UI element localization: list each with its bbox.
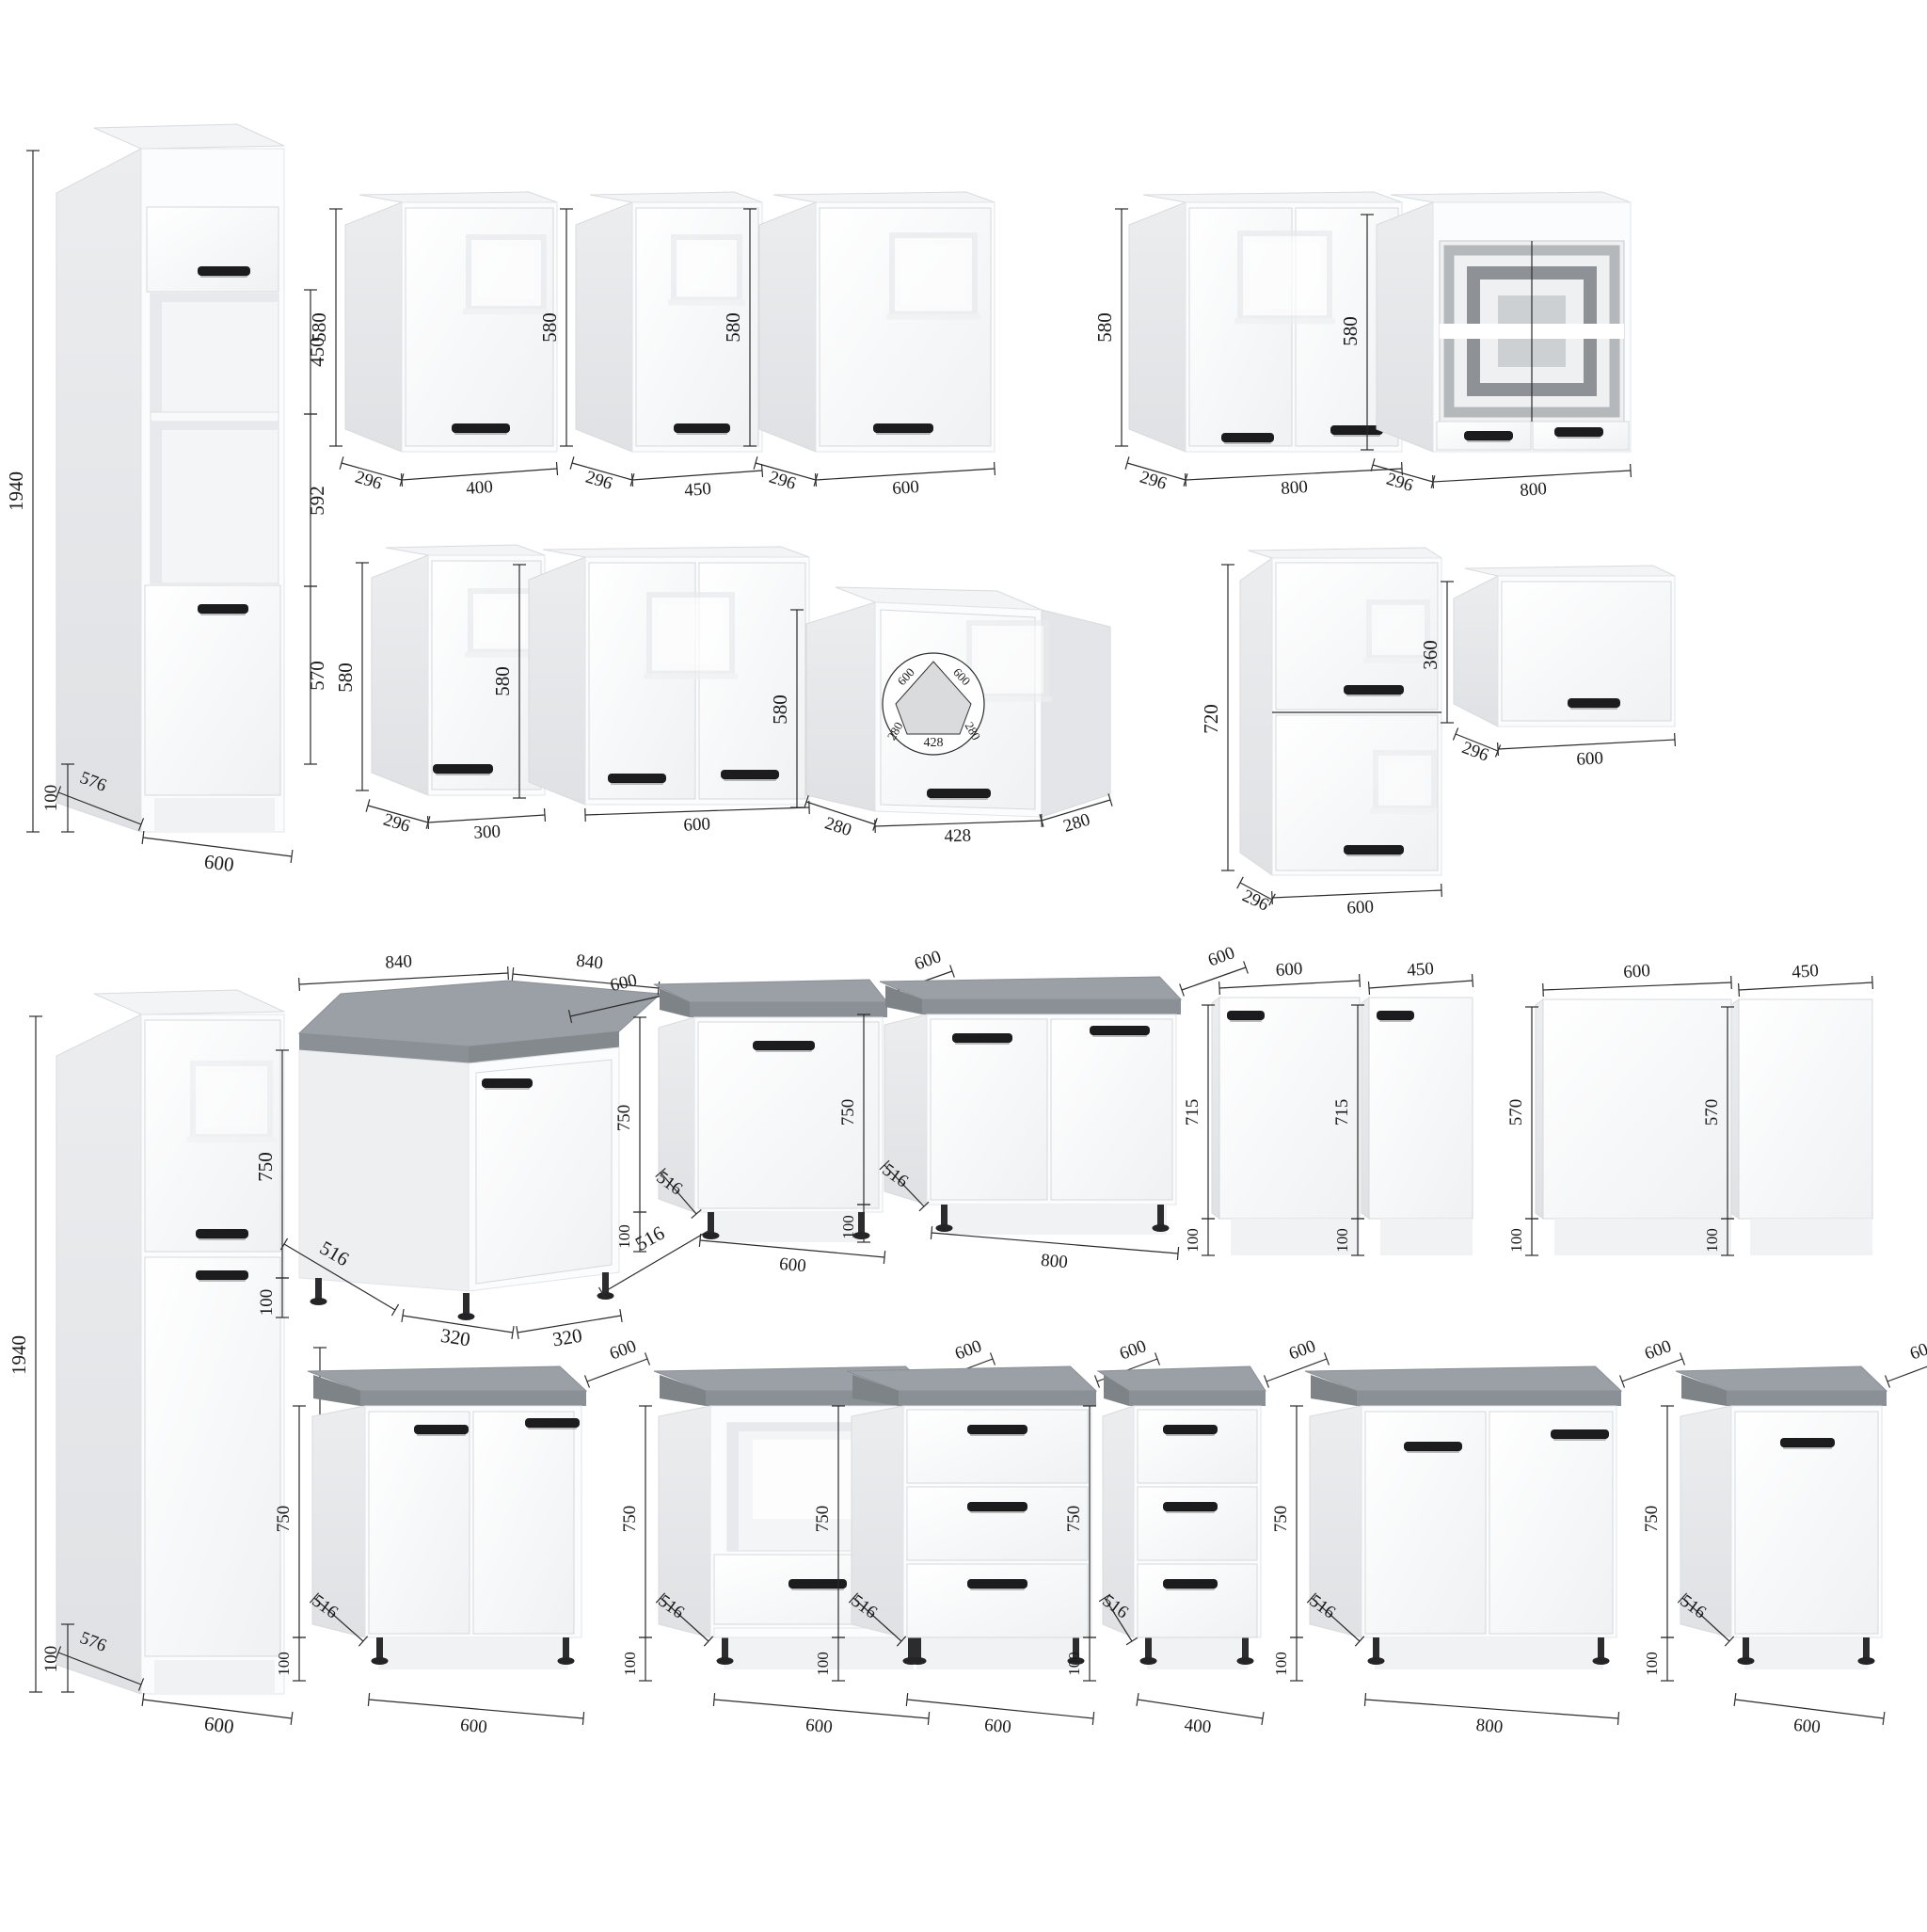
- dimension: 580: [334, 563, 369, 790]
- side-face: [576, 202, 632, 452]
- window-sill: [1234, 318, 1335, 324]
- dimension-label: 428: [944, 826, 971, 847]
- door: [1489, 1412, 1613, 1634]
- door-handle: [1344, 845, 1404, 854]
- dim-line: [1498, 740, 1675, 749]
- dimension-label: 800: [1281, 477, 1309, 499]
- dim-line: [368, 1693, 369, 1706]
- door-handle: [198, 604, 248, 614]
- dimension-label: 100: [814, 1652, 832, 1676]
- dim-line: [906, 1693, 907, 1706]
- dimension: 600: [1219, 959, 1361, 995]
- dim-line: [1472, 974, 1473, 987]
- dimension-label: 296: [1138, 468, 1169, 494]
- dim-line: [1739, 983, 1740, 997]
- dimension-label: 100: [275, 1652, 293, 1676]
- top-face: [1391, 192, 1631, 202]
- dimension-label: 750: [838, 1099, 858, 1126]
- cabinet-dimensions-diagram: 1940450592570100576600580296400580296450…: [0, 0, 1927, 1927]
- countertop-front: [360, 1391, 586, 1406]
- window-reflection: [1370, 753, 1440, 814]
- dim-line: [369, 1700, 583, 1718]
- door-handle: [967, 1579, 1027, 1589]
- countertop-front: [1357, 1391, 1621, 1406]
- dim-line: [1237, 877, 1244, 888]
- dim-line: [1219, 982, 1220, 995]
- handle-shadow: [1407, 1450, 1459, 1453]
- dimension-label: 450: [1792, 961, 1820, 982]
- appliance-front-600x570: 600570100: [1506, 961, 1731, 1255]
- dimension-label: 600: [983, 1716, 1011, 1737]
- dim-line: [1631, 464, 1632, 477]
- dimension: 320: [517, 1309, 622, 1350]
- dimension-label: 750: [813, 1506, 833, 1533]
- dimension: 600: [585, 1336, 650, 1387]
- plinth: [154, 1660, 275, 1694]
- leg-foot: [703, 1232, 720, 1239]
- handle-shadow: [1553, 1438, 1606, 1441]
- dimension: 800: [1364, 1693, 1618, 1737]
- handle-shadow: [1166, 1433, 1215, 1436]
- window-sill: [463, 309, 549, 314]
- dim-line: [1498, 742, 1499, 756]
- dimension: 570: [1506, 1007, 1538, 1219]
- window-reflection: [668, 237, 745, 306]
- dim-line: [714, 1700, 929, 1718]
- dimension: 100: [1184, 1219, 1215, 1255]
- dimension-label: 600: [1576, 748, 1604, 769]
- top-face: [590, 192, 762, 202]
- leg-foot: [717, 1657, 734, 1665]
- dimension: 600: [1543, 961, 1732, 997]
- door-handle: [1464, 431, 1513, 440]
- side-face: [1377, 202, 1433, 452]
- top-face: [94, 990, 284, 1014]
- edge: [1536, 999, 1543, 1219]
- dimension: 450: [1368, 959, 1473, 995]
- dimension-label: 400: [1184, 1716, 1212, 1737]
- dimension-label: 840: [385, 951, 413, 972]
- door-handle: [1163, 1425, 1218, 1434]
- dimension-label: 720: [1200, 704, 1222, 734]
- dimension-label: 580: [1339, 316, 1362, 346]
- top-face: [386, 545, 545, 555]
- dimension-label: 580: [308, 312, 330, 343]
- window-glass: [1385, 762, 1425, 799]
- leg: [1743, 1637, 1749, 1658]
- dimension-label: 450: [1407, 959, 1435, 981]
- dimension: 1940: [8, 1016, 42, 1692]
- window-sill: [668, 300, 745, 306]
- side-face-right: [1042, 610, 1110, 817]
- leg: [722, 1637, 728, 1658]
- door-handle: [952, 1033, 1012, 1043]
- dim-line: [1731, 976, 1732, 989]
- door-handle: [1090, 1026, 1150, 1035]
- handle-shadow: [1333, 434, 1380, 437]
- dimension: 600: [906, 1693, 1093, 1737]
- dim-line: [645, 1352, 650, 1365]
- dimension-label: 280: [822, 813, 854, 840]
- dimension: 715: [1183, 1005, 1215, 1219]
- leg-foot: [910, 1657, 927, 1665]
- plinth: [1375, 1637, 1603, 1669]
- dimension: 600: [1498, 733, 1676, 770]
- dimension-label: 580: [722, 312, 744, 343]
- dimension-label: 600: [912, 947, 944, 974]
- dimension: 450: [631, 464, 762, 501]
- door-handle: [1344, 685, 1404, 695]
- dim-line: [545, 808, 546, 822]
- dim-line: [1433, 475, 1434, 488]
- leg: [708, 1212, 714, 1233]
- dim-line: [1092, 1712, 1093, 1725]
- plinth: [946, 1205, 1167, 1235]
- dimension-label: 100: [1333, 1228, 1351, 1253]
- door-handle: [927, 789, 991, 798]
- dim-line: [1543, 982, 1731, 990]
- side-face-left: [806, 602, 875, 811]
- dimension-label: 600: [1275, 959, 1303, 981]
- dimension-label: 600: [1623, 961, 1651, 982]
- dimension-label: 580: [334, 663, 357, 693]
- handle-shadow: [485, 1087, 530, 1090]
- handle-shadow: [1224, 441, 1271, 444]
- dimension-label: 800: [1040, 1251, 1068, 1272]
- handle-shadow: [970, 1510, 1025, 1513]
- door-handle: [1330, 425, 1383, 435]
- side-face: [1129, 202, 1186, 452]
- dim-line: [1887, 1359, 1927, 1381]
- door: [145, 1257, 280, 1656]
- door-handle: [674, 423, 730, 433]
- dimension-label: 570: [1506, 1099, 1526, 1126]
- dimension: 580: [1093, 209, 1128, 446]
- dimension-label: 400: [466, 477, 494, 499]
- tall-cabinet-oven-housing: 1940450592570100576600: [5, 124, 328, 876]
- door: [369, 1412, 470, 1634]
- countertop-front: [1727, 1391, 1887, 1406]
- side-face: [56, 149, 141, 832]
- door: [907, 1410, 1088, 1483]
- dimension-label: 360: [1419, 640, 1441, 670]
- dimension-label: 592: [306, 486, 328, 516]
- dimension-label: 300: [473, 822, 502, 842]
- dimension: 296: [1371, 458, 1435, 496]
- oven-niche-back: [753, 1440, 866, 1519]
- dimension-label: 296: [353, 468, 384, 494]
- dim-line: [512, 967, 513, 981]
- dimension-label: 100: [1272, 1652, 1290, 1676]
- leg: [1157, 1205, 1164, 1225]
- dimension-label: 570: [306, 661, 328, 691]
- dim-line: [1364, 1693, 1365, 1706]
- window-glass: [478, 247, 534, 299]
- dimension: 600: [1734, 1693, 1885, 1737]
- door-handle: [1404, 1442, 1462, 1451]
- dim-line: [299, 978, 300, 991]
- dimension: 100: [1272, 1637, 1303, 1681]
- dim-line: [401, 473, 402, 487]
- door-handle: [967, 1425, 1027, 1434]
- door-handle: [1554, 427, 1603, 437]
- window-sill: [187, 1137, 276, 1142]
- plinth: [1750, 1219, 1872, 1255]
- countertop-top: [654, 980, 887, 1002]
- dim-line: [1325, 1352, 1330, 1365]
- dimension: 750: [1271, 1406, 1303, 1637]
- dimension-label: 320: [550, 1324, 583, 1351]
- leg-foot: [1237, 1657, 1254, 1665]
- panel-front: [1739, 999, 1872, 1219]
- leg-foot: [936, 1224, 953, 1232]
- dimension-label: 715: [1332, 1099, 1352, 1126]
- dimension: 100: [1643, 1637, 1674, 1681]
- side-face: [1240, 558, 1272, 875]
- dimension: 600: [142, 831, 293, 876]
- dimension: 296: [570, 456, 634, 494]
- dim-line: [1272, 890, 1441, 898]
- window-sill: [886, 314, 980, 320]
- handle-shadow: [1092, 1034, 1147, 1037]
- dim-line: [1186, 473, 1186, 487]
- dimension-label: 296: [381, 810, 412, 837]
- handle-shadow: [199, 1237, 246, 1240]
- handle-shadow: [1346, 694, 1401, 696]
- dimension: 800: [1186, 462, 1403, 499]
- edge: [1212, 998, 1219, 1219]
- dimension-label: 600: [1792, 1716, 1821, 1737]
- dimension: 592: [304, 414, 328, 586]
- door: [1138, 1564, 1257, 1637]
- dimension: 320: [402, 1309, 514, 1350]
- dim-line: [932, 1233, 1178, 1253]
- leg-foot: [458, 1313, 475, 1320]
- dim-line: [508, 966, 509, 980]
- dimension-label: 320: [439, 1324, 472, 1351]
- countertop-top: [1305, 1366, 1621, 1391]
- dimension: 600: [585, 801, 809, 836]
- niche-shade: [151, 422, 279, 430]
- dim-line: [761, 464, 762, 477]
- dim-line: [1365, 1700, 1618, 1718]
- dim-line: [931, 1226, 932, 1239]
- leg-foot: [1738, 1657, 1755, 1665]
- window-sill: [644, 674, 738, 679]
- countertop-front: [899, 1391, 1096, 1406]
- dimension-label: 580: [491, 666, 514, 696]
- door: [476, 1060, 612, 1284]
- dimension-label: 715: [1183, 1099, 1202, 1126]
- dim-line: [816, 473, 817, 487]
- window-reflection: [463, 237, 549, 314]
- door-handle: [452, 423, 510, 433]
- dimension-label: 600: [203, 850, 235, 876]
- leg-foot: [1140, 1657, 1157, 1665]
- dim-line: [582, 1712, 583, 1725]
- base-cabinet-600-single-door: 600750100516600: [1642, 1336, 1927, 1737]
- dimension: 450: [304, 290, 328, 414]
- window-glass: [1378, 612, 1418, 648]
- leg-foot: [1368, 1657, 1385, 1665]
- edge: [1731, 999, 1739, 1219]
- side-face: [345, 202, 402, 452]
- door-handle: [1780, 1438, 1835, 1447]
- door-handle: [1227, 1011, 1265, 1020]
- dim-line: [658, 982, 659, 995]
- dim-line: [1886, 1375, 1890, 1387]
- door-handle: [1568, 698, 1620, 708]
- door: [931, 1019, 1047, 1200]
- dimension-label: 100: [41, 785, 61, 812]
- handle-shadow: [876, 432, 931, 435]
- handle-shadow: [528, 1427, 577, 1429]
- dimension: 296: [1237, 877, 1276, 916]
- plinth: [1380, 1219, 1473, 1255]
- side-face: [372, 555, 428, 795]
- door-handle: [196, 1270, 248, 1280]
- dimension: 450: [1739, 961, 1873, 997]
- dim-line: [1453, 728, 1457, 741]
- niche-shade: [727, 1423, 739, 1551]
- door-handle: [873, 423, 933, 433]
- dimension-label: 296: [583, 468, 614, 494]
- dimension-label: 600: [1205, 943, 1237, 970]
- corner-base-cabinet: 840840600750100516320320516: [254, 951, 715, 1351]
- dimension: 428: [875, 814, 1042, 846]
- handle-shadow: [1166, 1588, 1215, 1590]
- dimension-label: 750: [614, 1105, 634, 1132]
- dim-line: [1368, 982, 1369, 995]
- dimension-label: 840: [575, 951, 604, 974]
- door: [1051, 1019, 1172, 1200]
- door-handle: [1221, 433, 1274, 442]
- handle-shadow: [1379, 1019, 1411, 1022]
- open-niche: [151, 422, 279, 583]
- dim-line: [391, 1304, 398, 1316]
- window-glass: [979, 632, 1037, 687]
- dimension-label: 600: [892, 477, 920, 499]
- door-handle: [196, 1229, 248, 1238]
- dimension: 296: [366, 799, 430, 837]
- niche-shade: [151, 422, 162, 583]
- dimension-label: 100: [41, 1646, 61, 1673]
- dim-line: [1617, 1712, 1618, 1725]
- dimension-label: 750: [1271, 1506, 1291, 1533]
- door-handle: [608, 774, 666, 783]
- dimension-label: 600: [683, 814, 711, 835]
- handle-shadow: [611, 782, 663, 785]
- dimension-label: 800: [1520, 479, 1548, 501]
- leg: [915, 1637, 921, 1658]
- door: [907, 1564, 1088, 1637]
- dim-line: [1272, 891, 1273, 904]
- dimension-label: 1940: [8, 1335, 30, 1375]
- window-glass: [683, 247, 730, 291]
- top-face: [543, 547, 809, 557]
- dimension: 600: [1272, 884, 1442, 918]
- top-face: [1465, 566, 1675, 576]
- dimension: 296: [340, 456, 404, 494]
- dimension: 720: [1200, 565, 1234, 870]
- handle-shadow: [955, 1042, 1010, 1045]
- dim-line: [1735, 1700, 1884, 1718]
- dimension-label: 1940: [5, 471, 27, 511]
- dim-line: [907, 1700, 1093, 1718]
- shelf: [151, 412, 279, 422]
- dimension: 400: [401, 462, 557, 499]
- handle-shadow: [436, 773, 490, 775]
- handle-shadow: [756, 1049, 812, 1052]
- dimension: 600: [1180, 943, 1249, 997]
- dim-line: [1219, 981, 1360, 988]
- leg: [376, 1637, 383, 1658]
- dim-line: [1441, 884, 1442, 897]
- dimension: 300: [428, 808, 546, 843]
- dimension-label: 100: [621, 1652, 639, 1676]
- dimension: 600: [142, 1693, 293, 1738]
- door-handle: [433, 764, 493, 774]
- dimension: 600: [368, 1693, 583, 1737]
- door: [1138, 1487, 1257, 1560]
- door-handle: [482, 1078, 533, 1088]
- leg: [1863, 1637, 1870, 1658]
- tall-cabinet-fridge-housing: 1940720100576600: [8, 990, 338, 1738]
- door-handle: [967, 1502, 1027, 1511]
- handle-shadow: [1230, 1019, 1262, 1022]
- window-glass: [480, 600, 525, 643]
- door-handle: [525, 1418, 580, 1428]
- window-glass: [202, 1073, 261, 1127]
- base-cabinet-800-two-door-r4: 600750100516800: [1271, 1336, 1684, 1737]
- panel-front: [1369, 998, 1473, 1219]
- wall-cabinet-600x720: 720296600: [1200, 548, 1441, 918]
- dim-line: [1739, 982, 1872, 990]
- dim-line: [631, 473, 632, 487]
- leg: [315, 1278, 322, 1299]
- dim-line: [1182, 967, 1246, 990]
- leg-foot: [558, 1657, 575, 1665]
- dim-line: [585, 807, 809, 815]
- dim-line: [928, 1712, 929, 1725]
- wall-cabinet-800-glass: 580296800: [1339, 192, 1631, 501]
- wall-cabinet-600x360: 360296600: [1419, 566, 1675, 770]
- leg-foot: [1858, 1657, 1875, 1665]
- handle-shadow: [199, 1279, 246, 1282]
- niche-shade: [151, 294, 162, 412]
- door: [473, 1412, 574, 1634]
- side-face: [759, 202, 816, 452]
- leg: [1242, 1637, 1249, 1658]
- dimension-label: 600: [203, 1712, 235, 1738]
- dim-line: [1680, 1352, 1685, 1365]
- leg: [1373, 1637, 1379, 1658]
- dimension: 800: [1433, 464, 1632, 501]
- leg: [463, 1293, 470, 1314]
- window-reflection: [644, 595, 738, 679]
- window-sill: [1370, 808, 1440, 814]
- dimension: 600: [713, 1693, 929, 1737]
- side-face: [56, 1014, 141, 1694]
- drawer-base-cabinet-400: 600750100516400: [1064, 1336, 1329, 1737]
- dimension: 570: [304, 586, 328, 764]
- side-face: [1454, 576, 1498, 726]
- dimension: 750: [1642, 1406, 1674, 1637]
- handle-shadow: [1783, 1446, 1832, 1449]
- side-face: [529, 557, 585, 805]
- countertop-front: [922, 999, 1181, 1014]
- dimension-label: 100: [1065, 1652, 1083, 1676]
